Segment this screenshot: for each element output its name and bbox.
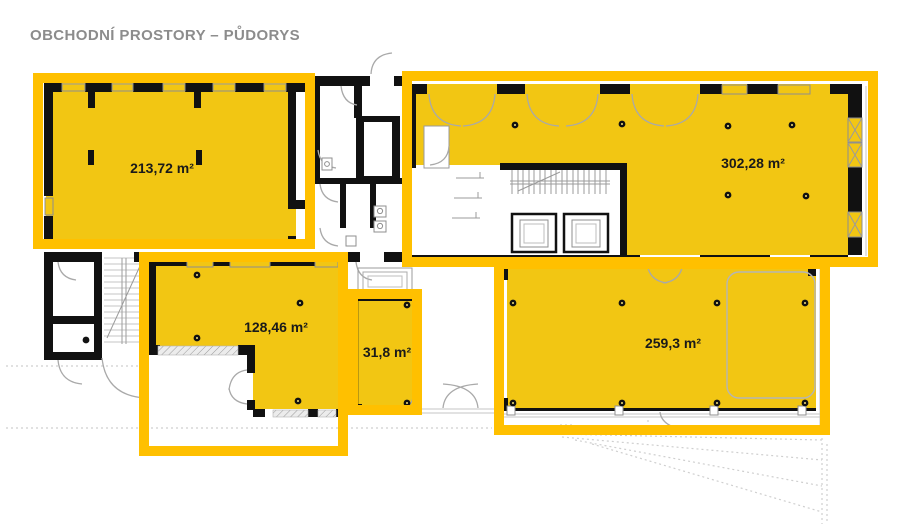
wc-fixtures [322,158,386,246]
page-canvas: OBCHODNÍ PROSTORY – PŮDORYS 213,72 m² 30… [0,0,920,528]
recessed-entry-symbol [358,268,412,292]
area-label-unit-small-middle: 31,8 m² [363,344,411,360]
area-label-unit-mid-left: 128,46 m² [244,319,308,335]
area-label-unit-bottom-right: 259,3 m² [645,335,701,351]
floor-plan-drawing [0,0,920,528]
page-title: OBCHODNÍ PROSTORY – PŮDORYS [30,27,300,44]
closet-room [424,126,449,168]
area-label-unit-top-left: 213,72 m² [130,160,194,176]
area-label-unit-top-right: 302,28 m² [721,155,785,171]
